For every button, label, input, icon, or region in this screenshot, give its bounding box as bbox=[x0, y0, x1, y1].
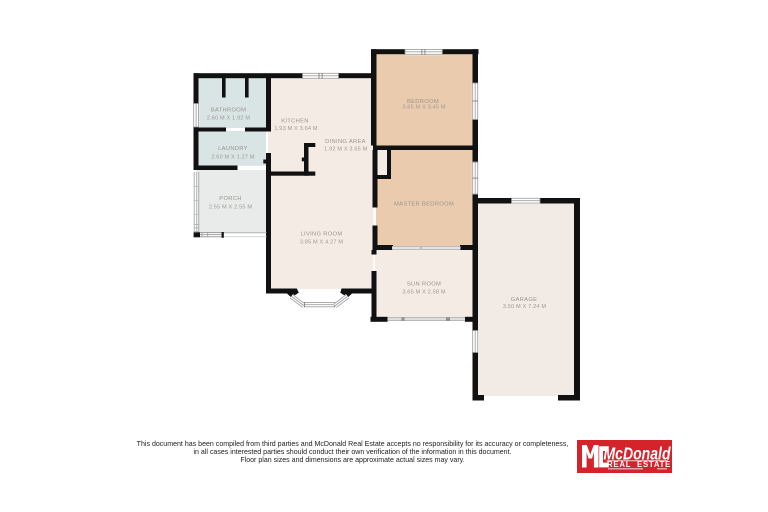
svg-text:1.93 M X 3.64 M: 1.93 M X 3.64 M bbox=[274, 126, 317, 132]
svg-text:LIVING ROOM: LIVING ROOM bbox=[301, 232, 343, 238]
svg-text:3.65 M X 2.58 M: 3.65 M X 2.58 M bbox=[402, 290, 445, 296]
svg-text:2.60 M X 1.27 M: 2.60 M X 1.27 M bbox=[211, 154, 254, 160]
svg-text:LAUNDRY: LAUNDRY bbox=[218, 146, 248, 152]
svg-text:MASTER BEDROOM: MASTER BEDROOM bbox=[394, 202, 454, 208]
svg-text:REAL ESTATE: REAL ESTATE bbox=[607, 460, 671, 469]
svg-text:2.60 M X 1.92 M: 2.60 M X 1.92 M bbox=[207, 115, 250, 121]
svg-text:PORCH: PORCH bbox=[219, 196, 241, 202]
svg-text:3.85 M X 4.27 M: 3.85 M X 4.27 M bbox=[300, 240, 343, 246]
svg-text:BATHROOM: BATHROOM bbox=[211, 108, 246, 114]
svg-text:3.50 M X 7.24 M: 3.50 M X 7.24 M bbox=[503, 304, 546, 310]
svg-text:DINING AREA: DINING AREA bbox=[325, 139, 366, 145]
svg-text:3.65 M X 3.45 M: 3.65 M X 3.45 M bbox=[402, 105, 445, 111]
svg-text:1.92 M X 3.65 M: 1.92 M X 3.65 M bbox=[324, 147, 367, 153]
svg-text:KITCHEN: KITCHEN bbox=[281, 119, 309, 125]
svg-text:GARAGE: GARAGE bbox=[511, 297, 538, 303]
svg-text:2.55 M X 2.55 M: 2.55 M X 2.55 M bbox=[209, 204, 252, 210]
svg-text:SUN ROOM: SUN ROOM bbox=[407, 282, 441, 288]
